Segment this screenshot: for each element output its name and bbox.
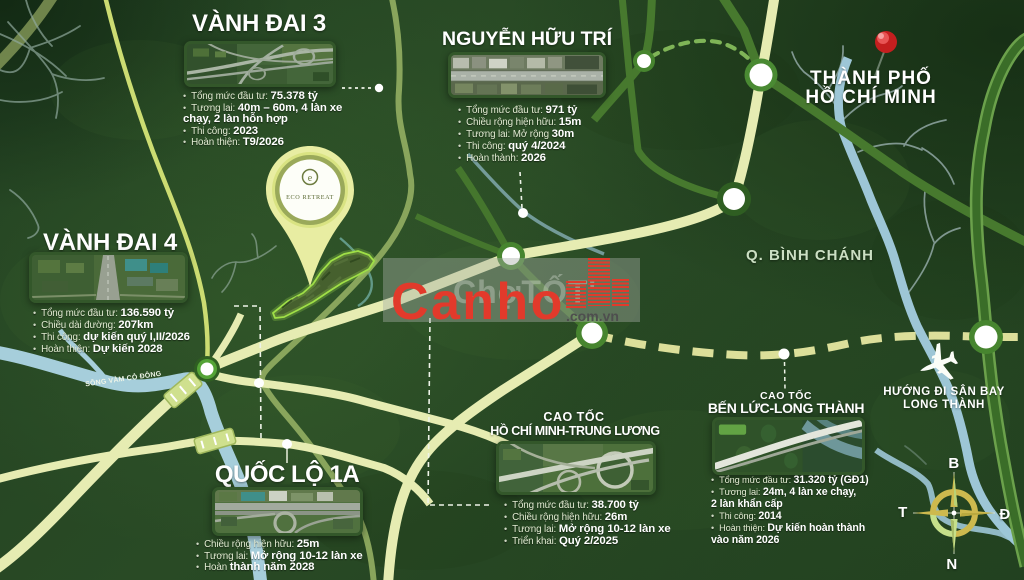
svg-text:e: e: [308, 173, 313, 184]
svg-text:ECO RETREAT: ECO RETREAT: [286, 194, 334, 201]
